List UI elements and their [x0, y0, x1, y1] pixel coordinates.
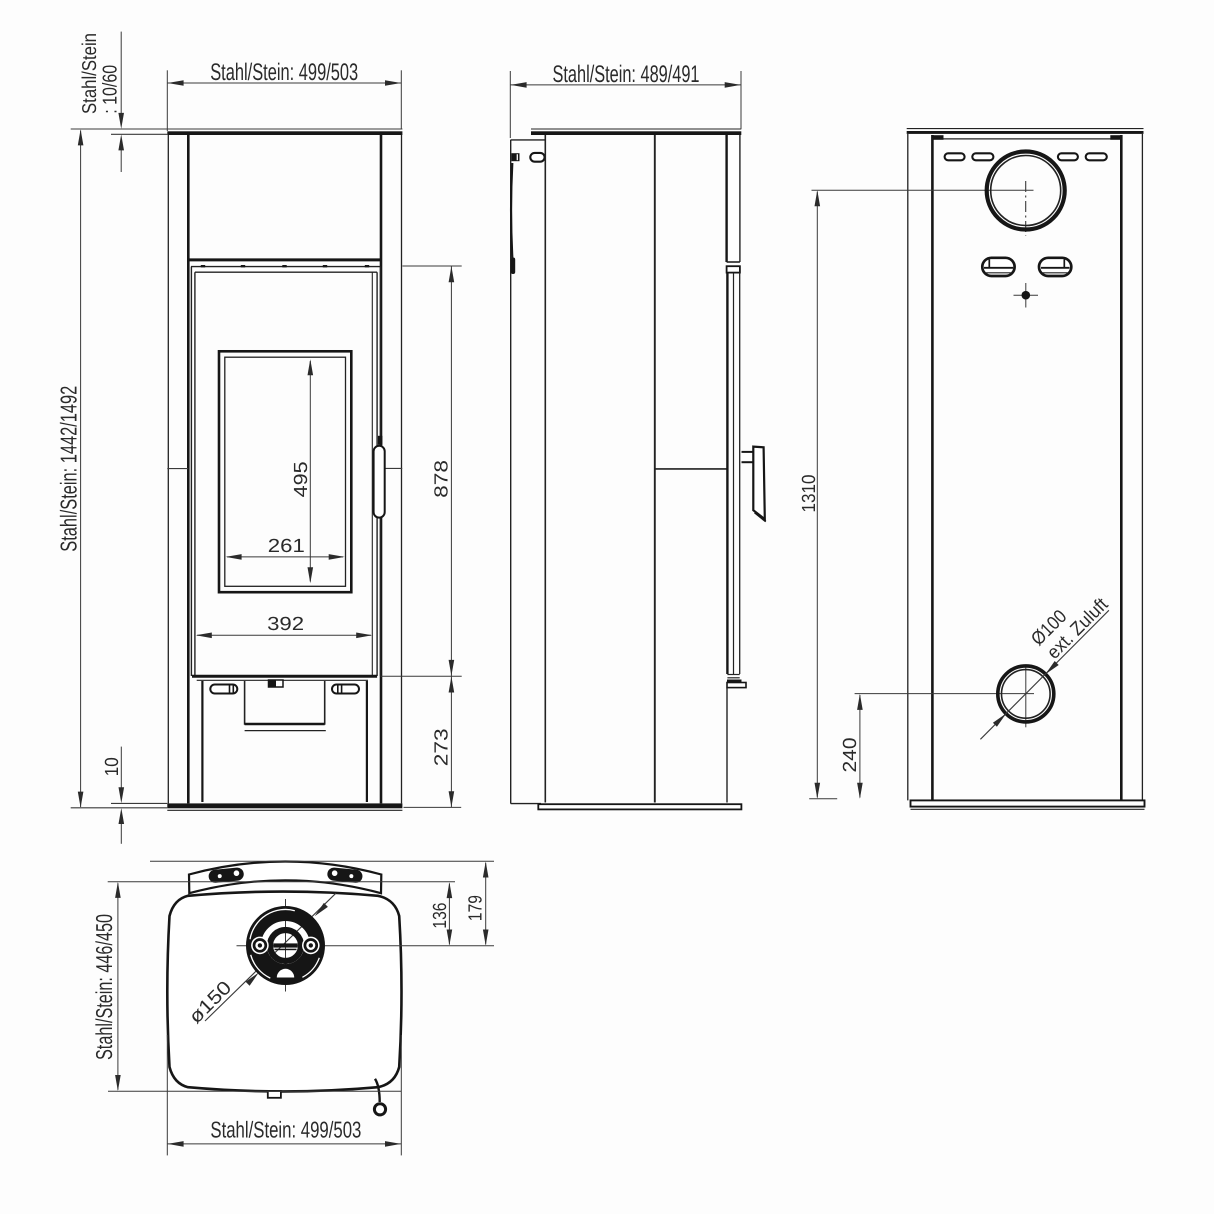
svg-text:136: 136 — [430, 903, 451, 929]
svg-text:: 10/60: : 10/60 — [100, 65, 122, 114]
svg-text:240: 240 — [840, 738, 861, 773]
svg-text:261: 261 — [268, 536, 305, 557]
svg-text:1310: 1310 — [799, 475, 820, 513]
svg-text:878: 878 — [431, 460, 452, 498]
svg-text:Stahl/Stein: 446/450: Stahl/Stein: 446/450 — [91, 914, 117, 1060]
svg-text:10: 10 — [102, 757, 123, 776]
svg-text:495: 495 — [291, 461, 312, 497]
svg-text:Stahl/Stein: 499/503: Stahl/Stein: 499/503 — [210, 1116, 361, 1142]
svg-text:Stahl/Stein: 489/491: Stahl/Stein: 489/491 — [553, 61, 700, 88]
svg-text:Stahl/Stein: 499/503: Stahl/Stein: 499/503 — [210, 59, 358, 86]
svg-text:Stahl/Stein: 1442/1492: Stahl/Stein: 1442/1492 — [55, 386, 81, 552]
svg-text:Stahl/Stein: Stahl/Stein — [79, 33, 101, 114]
svg-text:179: 179 — [465, 895, 486, 921]
svg-text:273: 273 — [431, 728, 452, 766]
svg-text:392: 392 — [267, 614, 304, 635]
